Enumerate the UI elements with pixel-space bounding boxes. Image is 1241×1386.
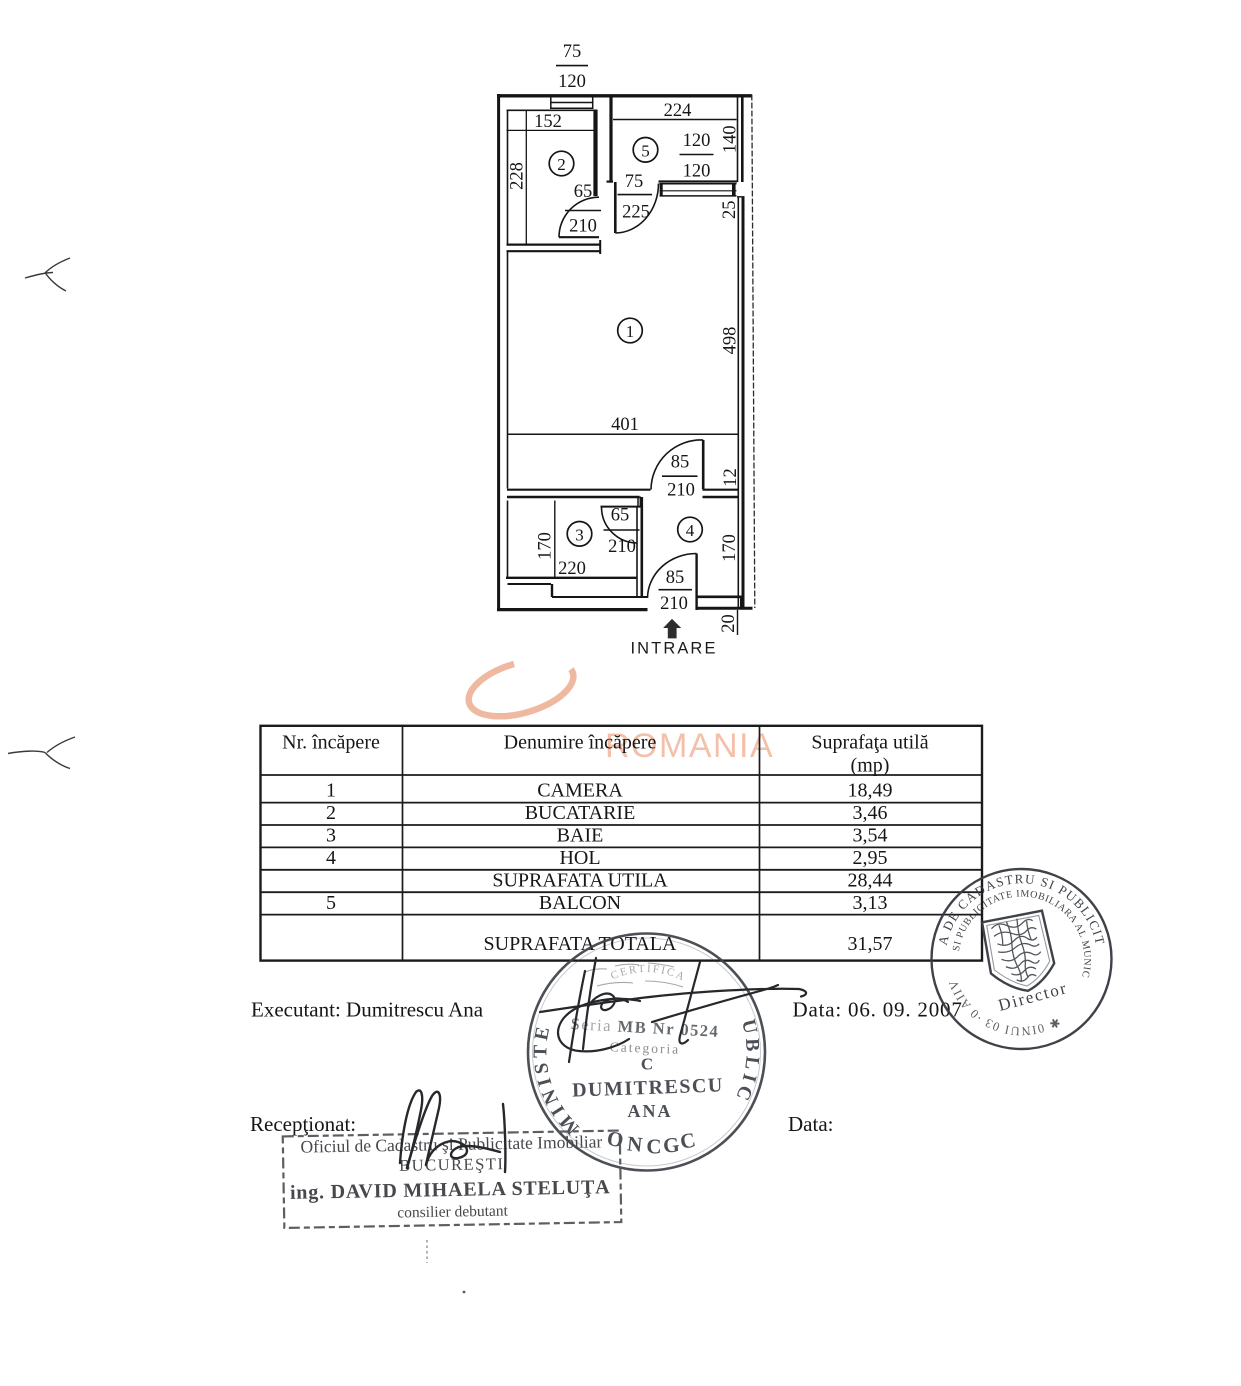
svg-text:HOL: HOL xyxy=(559,847,600,869)
svg-text:INTRARE: INTRARE xyxy=(630,640,717,658)
svg-text:Recepţionat:: Recepţionat: xyxy=(250,1112,356,1136)
svg-text:120: 120 xyxy=(683,131,711,151)
svg-text:Data:: Data: xyxy=(788,1112,833,1136)
svg-text:210: 210 xyxy=(608,537,636,557)
svg-text:DUMITRESCU: DUMITRESCU xyxy=(572,1074,724,1101)
svg-text:220: 220 xyxy=(558,559,586,579)
svg-text:2: 2 xyxy=(326,802,336,824)
svg-text:MINISTERI: MINISTERI xyxy=(0,0,584,1138)
svg-text:Seria MB Nr 0524: Seria MB Nr 0524 xyxy=(570,1014,720,1041)
svg-text:4: 4 xyxy=(686,521,695,540)
svg-text:5: 5 xyxy=(326,892,336,914)
svg-text:210: 210 xyxy=(660,594,688,614)
svg-text:31,57: 31,57 xyxy=(848,933,893,955)
svg-text:85: 85 xyxy=(671,453,690,473)
svg-text:5: 5 xyxy=(641,141,650,160)
svg-text:C: C xyxy=(646,1135,661,1159)
svg-text:228: 228 xyxy=(508,162,528,190)
svg-text:(mp): (mp) xyxy=(851,755,890,777)
svg-text:BALCON: BALCON xyxy=(539,892,621,914)
svg-text:SUPRAFATA TOTALA: SUPRAFATA TOTALA xyxy=(484,933,678,955)
svg-text:65: 65 xyxy=(611,506,630,526)
svg-text:120: 120 xyxy=(558,72,586,92)
svg-text:BUCATARIE: BUCATARIE xyxy=(525,802,636,824)
svg-text:ANA: ANA xyxy=(628,1101,673,1121)
svg-text:120: 120 xyxy=(683,162,711,182)
svg-text:3,54: 3,54 xyxy=(853,825,888,847)
svg-text:N: N xyxy=(626,1131,644,1156)
svg-text:75: 75 xyxy=(625,172,644,192)
svg-text:3,13: 3,13 xyxy=(853,892,888,914)
svg-text:224: 224 xyxy=(664,101,692,121)
svg-text:3: 3 xyxy=(326,825,336,847)
svg-text:65: 65 xyxy=(574,182,593,202)
svg-text:28,44: 28,44 xyxy=(848,869,893,891)
svg-text:20: 20 xyxy=(719,614,739,633)
svg-text:CAMERA: CAMERA xyxy=(537,780,623,802)
svg-text:18,49: 18,49 xyxy=(848,780,893,802)
svg-text:225: 225 xyxy=(622,203,650,223)
svg-text:Data: 06. 09. 2007: Data: 06. 09. 2007 xyxy=(793,998,963,1022)
svg-text:G: G xyxy=(662,1132,681,1158)
svg-text:1: 1 xyxy=(326,780,336,802)
svg-text:170: 170 xyxy=(720,534,740,562)
svg-text:25: 25 xyxy=(720,200,740,219)
svg-text:consilier debutant: consilier debutant xyxy=(397,1203,509,1222)
svg-text:Suprafaţa utilă: Suprafaţa utilă xyxy=(811,732,928,754)
svg-text:C: C xyxy=(678,1127,697,1153)
svg-text:Denumire încăpere: Denumire încăpere xyxy=(504,732,657,754)
svg-text:C: C xyxy=(641,1055,653,1074)
svg-text:1: 1 xyxy=(626,322,635,341)
svg-text:4: 4 xyxy=(326,847,336,869)
svg-text:498: 498 xyxy=(721,327,741,355)
svg-text:2,95: 2,95 xyxy=(853,847,888,869)
svg-text:170: 170 xyxy=(536,532,556,560)
svg-text:SUPRAFATA UTILA: SUPRAFATA UTILA xyxy=(492,869,668,891)
svg-text:75: 75 xyxy=(563,42,582,62)
svg-text:Executant: Dumitrescu Ana: Executant: Dumitrescu Ana xyxy=(251,998,484,1022)
svg-text:3: 3 xyxy=(575,525,584,544)
svg-text:3,46: 3,46 xyxy=(853,802,888,824)
svg-text:401: 401 xyxy=(611,415,639,435)
svg-text:210: 210 xyxy=(569,217,597,237)
svg-text:152: 152 xyxy=(534,112,562,132)
svg-text:85: 85 xyxy=(666,568,685,588)
svg-text:ing. DAVID MIHAELA STELUŢA: ing. DAVID MIHAELA STELUŢA xyxy=(290,1176,611,1204)
svg-text:2: 2 xyxy=(557,155,566,174)
svg-text:12: 12 xyxy=(721,468,741,487)
svg-text:Nr. încăpere: Nr. încăpere xyxy=(282,732,380,754)
svg-text:210: 210 xyxy=(667,481,695,501)
svg-text:BAIE: BAIE xyxy=(557,825,604,847)
